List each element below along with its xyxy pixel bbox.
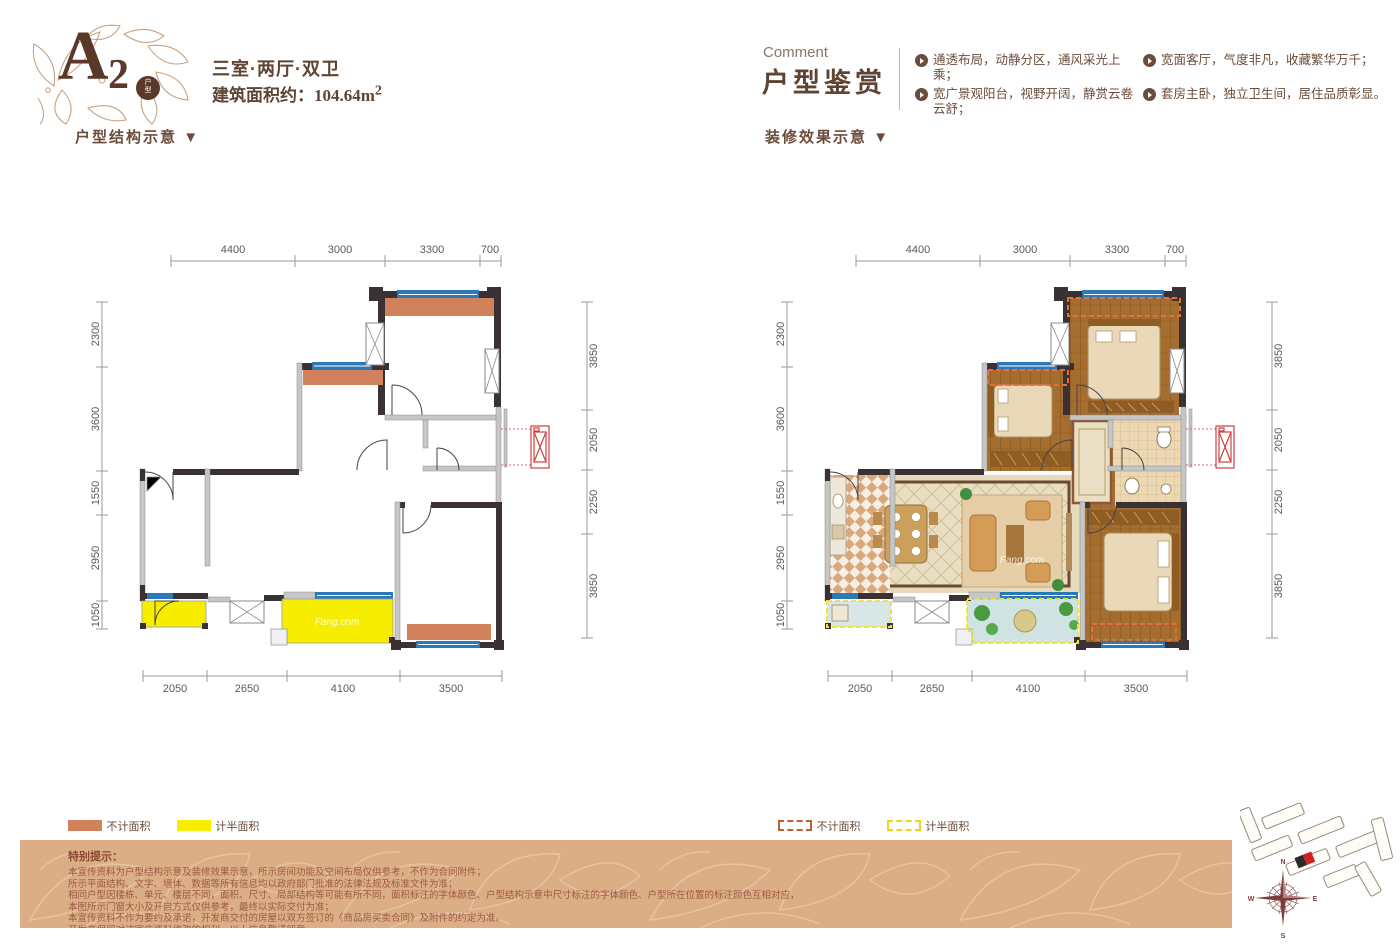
legend-structural: 不计面积 计半面积 bbox=[68, 817, 259, 835]
area-sup: 2 bbox=[375, 82, 382, 98]
triangle-down-icon: ▼ bbox=[873, 129, 890, 146]
legend-swatch-dashed-orange bbox=[778, 820, 812, 831]
svg-text:3600: 3600 bbox=[775, 407, 787, 431]
arrow-bullet-icon bbox=[1143, 54, 1156, 67]
selling-point-text: 通透布局，动静分区，通风采光上乘； bbox=[933, 53, 1143, 83]
structural-section-text: 户型结构示意 bbox=[75, 129, 177, 146]
selling-point-text: 宽面客厅，气度非凡，收藏繁华万千； bbox=[1161, 53, 1374, 68]
decorated-section-text: 装修效果示意 bbox=[765, 129, 867, 146]
svg-text:2650: 2650 bbox=[920, 683, 944, 695]
selling-point: 通透布局，动静分区，通风采光上乘； bbox=[915, 53, 1143, 87]
comment-en-label: Comment bbox=[763, 44, 828, 61]
selling-point: 宽广景观阳台，视野开阔，静赏云卷云舒； bbox=[915, 87, 1143, 121]
balcony-table bbox=[1014, 610, 1036, 632]
decorated-section-label: 装修效果示意 ▼ bbox=[765, 126, 890, 147]
svg-text:4400: 4400 bbox=[906, 244, 930, 256]
logo-badge-char2: 型 bbox=[136, 87, 160, 95]
floorplan-decorated: 4400 3000 3300 700 2300 3600 1550 2950 1… bbox=[770, 233, 1290, 703]
arrow-bullet-icon bbox=[915, 54, 928, 67]
svg-text:3850: 3850 bbox=[588, 574, 600, 598]
svg-text:2650: 2650 bbox=[235, 683, 259, 695]
logo-letter: A bbox=[58, 22, 109, 92]
ac-platform bbox=[1216, 426, 1234, 468]
disclaimer-line: 本宣传资料为户型结构示意及装修效果示意，所示房间功能及空间布局仅供参考，不作为合… bbox=[68, 867, 800, 879]
logo-badge: 户 型 bbox=[136, 76, 160, 100]
legend-half-count-label: 计半面积 bbox=[215, 821, 259, 833]
selling-points-list: 通透布局，动静分区，通风采光上乘； 宽面客厅，气度非凡，收藏繁华万千； 宽广景观… bbox=[915, 53, 1397, 121]
toilet bbox=[1157, 430, 1171, 448]
svg-text:3850: 3850 bbox=[1273, 574, 1285, 598]
legend-swatch-orange bbox=[68, 820, 102, 831]
compass-w: W bbox=[1248, 896, 1255, 903]
disclaimer-line: 相同户型因楼栋、单元、楼层不同，面积、尺寸、局部结构等可能有所不同，面积标注的字… bbox=[68, 890, 800, 902]
selling-point-text: 宽广景观阳台，视野开阔，静赏云卷云舒； bbox=[933, 87, 1143, 117]
disclaimer-line: 本图所示门窗大小及开启方式仅供参考，最终以实际交付为准； bbox=[68, 902, 800, 914]
compass-e: E bbox=[1313, 896, 1318, 903]
logo-number: 2 bbox=[108, 54, 129, 96]
triangle-down-icon: ▼ bbox=[183, 129, 200, 146]
bay-window-area bbox=[303, 370, 383, 385]
svg-text:2250: 2250 bbox=[588, 490, 600, 514]
structural-walls: Fang.com bbox=[140, 287, 549, 650]
compass-rose: N E S W bbox=[1247, 852, 1319, 944]
svg-text:1050: 1050 bbox=[775, 603, 787, 627]
svg-text:2300: 2300 bbox=[90, 322, 102, 346]
unit-logo: A 2 户 型 bbox=[28, 20, 198, 128]
sofa bbox=[970, 515, 996, 571]
watermark: Fang.com bbox=[1000, 555, 1044, 566]
svg-text:700: 700 bbox=[481, 244, 499, 256]
svg-text:2250: 2250 bbox=[1273, 490, 1285, 514]
svg-text:3300: 3300 bbox=[420, 244, 444, 256]
svg-text:2950: 2950 bbox=[775, 546, 787, 570]
disclaimer-line: 本宣传资料不作为要约及承诺，开发商交付的房屋以双方签订的《商品房买卖合同》及附件… bbox=[68, 913, 800, 925]
comment-cn-title: 户型鉴赏 bbox=[762, 61, 886, 100]
svg-text:1550: 1550 bbox=[90, 481, 102, 505]
svg-text:2050: 2050 bbox=[163, 683, 187, 695]
ac-platform bbox=[531, 426, 549, 468]
svg-text:4400: 4400 bbox=[221, 244, 245, 256]
svg-text:4100: 4100 bbox=[331, 683, 355, 695]
legend-half-count-label: 计半面积 bbox=[925, 821, 969, 833]
kitchen-counter bbox=[830, 477, 846, 555]
area-value: 104.64m bbox=[314, 86, 375, 105]
bay-window-area bbox=[383, 298, 495, 316]
svg-text:3850: 3850 bbox=[588, 344, 600, 368]
svg-text:3300: 3300 bbox=[1105, 244, 1129, 256]
compass-n: N bbox=[1280, 859, 1285, 866]
bay-window-area bbox=[407, 624, 491, 640]
disclaimer-band: 特别提示： 本宣传资料为户型结构示意及装修效果示意，所示房间功能及空间布局仅供参… bbox=[20, 840, 1232, 928]
selling-point: 宽面客厅，气度非凡，收藏繁华万千； bbox=[1143, 53, 1397, 87]
legend-swatch-yellow bbox=[177, 820, 211, 831]
legend-no-count-label: 不计面积 bbox=[816, 821, 860, 833]
svg-text:700: 700 bbox=[1166, 244, 1184, 256]
toilet bbox=[1125, 478, 1139, 494]
legend-swatch-dashed-yellow bbox=[887, 820, 921, 831]
svg-text:2050: 2050 bbox=[848, 683, 872, 695]
svg-text:2300: 2300 bbox=[775, 322, 787, 346]
svg-text:3500: 3500 bbox=[1124, 683, 1148, 695]
unit-area-title: 建筑面积约：104.64m2 bbox=[212, 81, 382, 106]
svg-text:2050: 2050 bbox=[588, 428, 600, 452]
header-divider bbox=[899, 48, 900, 110]
floorplan-structural: 4400 3000 3300 700 2300 3600 1550 2950 1… bbox=[85, 233, 605, 703]
svg-text:2050: 2050 bbox=[1273, 428, 1285, 452]
disclaimer-line: 所示平面结构、文字、墙体、数据等所有信息均以政府部门批准的法律法规及标准文件为准… bbox=[68, 879, 800, 891]
svg-text:1050: 1050 bbox=[90, 603, 102, 627]
compass-s: S bbox=[1281, 933, 1286, 940]
arrow-bullet-icon bbox=[915, 88, 928, 101]
svg-text:3850: 3850 bbox=[1273, 344, 1285, 368]
svg-text:3000: 3000 bbox=[1013, 244, 1037, 256]
disclaimer-line: 开发商保留对该宣传资料修改的权利，以上信息敬请留意。 bbox=[68, 925, 800, 929]
watermark: Fang.com bbox=[315, 617, 359, 628]
svg-text:2950: 2950 bbox=[90, 546, 102, 570]
selling-point-text: 套房主卧，独立卫生间，居住品质彰显。 bbox=[1161, 87, 1386, 102]
svg-text:3000: 3000 bbox=[328, 244, 352, 256]
disclaimer-title: 特别提示： bbox=[68, 848, 800, 864]
arrow-bullet-icon bbox=[1143, 88, 1156, 101]
unit-type-title: 三室·两厅·双卫 bbox=[212, 55, 340, 81]
legend-no-count-label: 不计面积 bbox=[106, 821, 150, 833]
balcony-half-area bbox=[142, 601, 206, 627]
area-label: 建筑面积约： bbox=[212, 86, 314, 105]
structural-section-label: 户型结构示意 ▼ bbox=[75, 126, 200, 147]
svg-text:3600: 3600 bbox=[90, 407, 102, 431]
svg-text:4100: 4100 bbox=[1016, 683, 1040, 695]
disclaimer-text: 特别提示： 本宣传资料为户型结构示意及装修效果示意，所示房间功能及空间布局仅供参… bbox=[68, 848, 800, 928]
floorplan-brochure-page: A 2 户 型 三室·两厅·双卫 建筑面积约：104.64m2 户型结构示意 ▼… bbox=[0, 0, 1400, 950]
legend-decorated: 不计面积 计半面积 bbox=[778, 817, 969, 835]
logo-badge-char1: 户 bbox=[136, 79, 160, 87]
svg-text:3500: 3500 bbox=[439, 683, 463, 695]
washer bbox=[832, 605, 848, 621]
svg-text:1550: 1550 bbox=[775, 481, 787, 505]
selling-point: 套房主卧，独立卫生间，居住品质彰显。 bbox=[1143, 87, 1397, 121]
